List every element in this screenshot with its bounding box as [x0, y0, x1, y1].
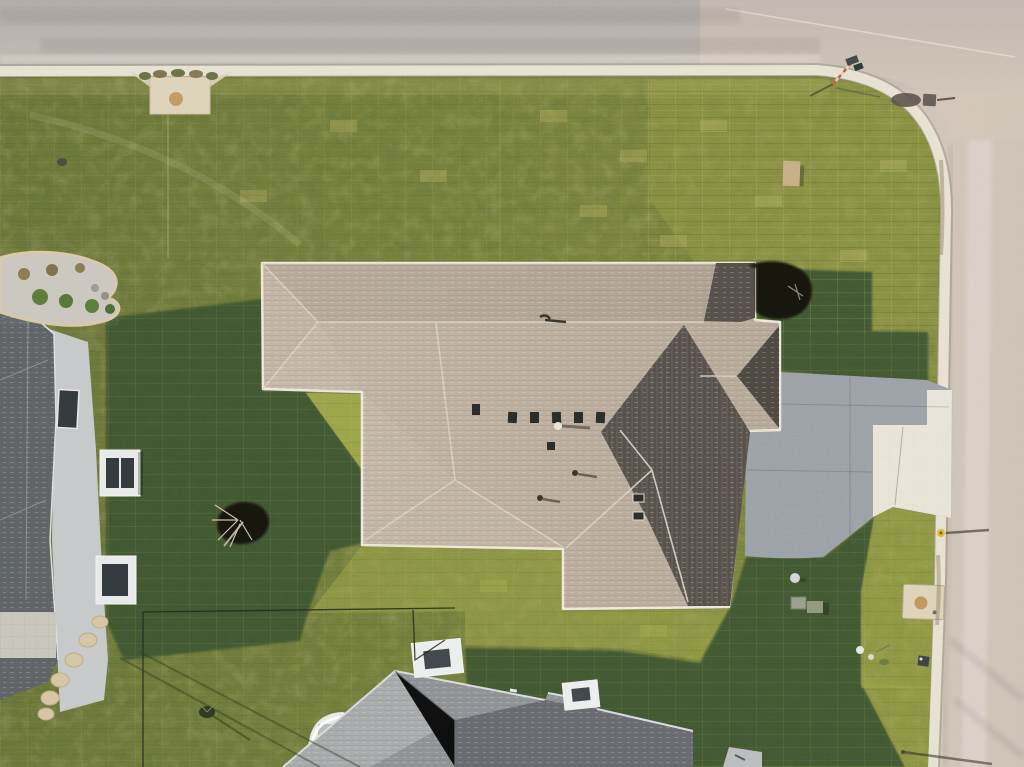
aerial-photo — [0, 0, 1024, 767]
photo-grain — [0, 0, 1024, 767]
